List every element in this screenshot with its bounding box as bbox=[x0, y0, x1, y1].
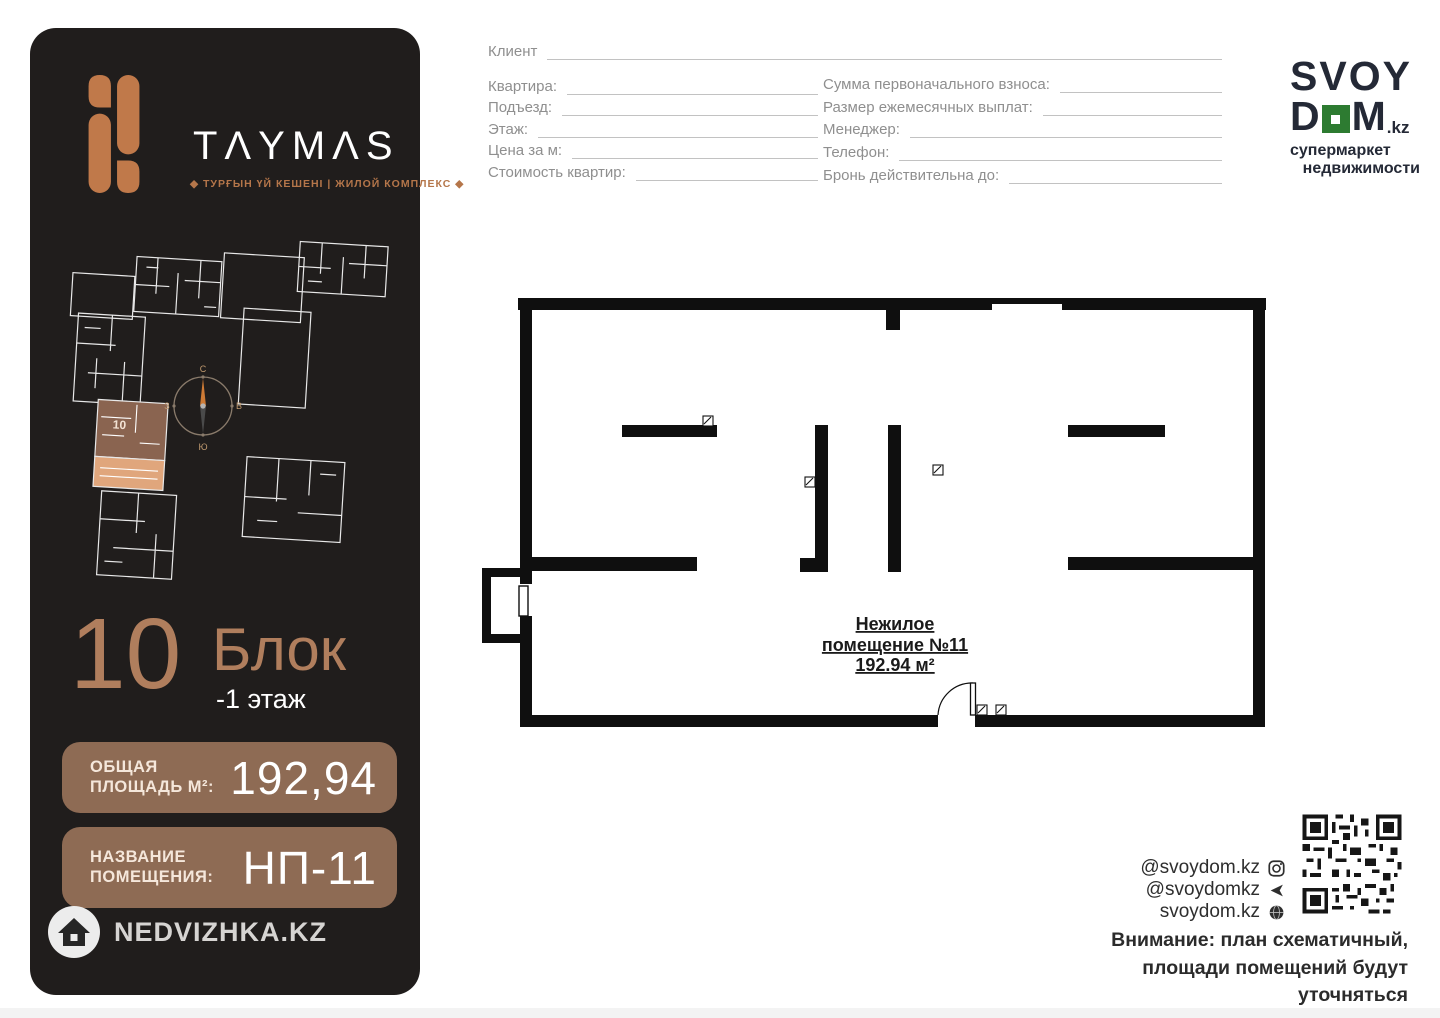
social-row: @svoydomkz bbox=[1080, 879, 1285, 901]
siteplan-building bbox=[73, 313, 145, 405]
form-label: Клиент bbox=[488, 43, 537, 60]
premises-label-line1: Нежилое bbox=[856, 614, 935, 634]
form-blank-line bbox=[910, 120, 1222, 138]
social-row: @svoydom.kz bbox=[1080, 857, 1285, 879]
form-blank-line bbox=[547, 42, 1222, 60]
house-icon bbox=[48, 906, 100, 958]
total-area-label: ОБЩАЯ ПЛОЩАДЬ М²: bbox=[90, 758, 214, 798]
siteplan-highlight-block bbox=[93, 399, 168, 490]
form-right-column: Сумма первоначального взноса: Размер еже… bbox=[823, 70, 1222, 184]
taymas-wordmark: TΛYMΛS bbox=[193, 124, 400, 169]
form-label: Подъезд: bbox=[488, 99, 552, 116]
form-blank-line bbox=[567, 77, 818, 95]
siteplan-building bbox=[242, 457, 345, 543]
form-row: Квартира: bbox=[488, 73, 818, 95]
svoydom-line2: D M .kz bbox=[1290, 98, 1420, 136]
premises-label-line3: 192.94 м² bbox=[855, 655, 934, 675]
floor-plan: Нежилое помещение №11 192.94 м² bbox=[470, 280, 1280, 740]
form-row: Размер ежемесячных выплат: bbox=[823, 93, 1222, 116]
siteplan-building bbox=[221, 253, 305, 323]
form-blank-line bbox=[562, 98, 818, 116]
siteplan-building bbox=[134, 257, 222, 317]
form-blank-line bbox=[1009, 166, 1222, 184]
form-label: Бронь действительна до: bbox=[823, 167, 999, 184]
form-label: Размер ежемесячных выплат: bbox=[823, 99, 1033, 116]
siteplan-building bbox=[97, 491, 177, 579]
telegram-icon bbox=[1268, 882, 1285, 899]
compass-north-label: С bbox=[200, 364, 207, 374]
left-panel: TΛYMΛS ◆ ТУРҒЫН ҮЙ КЕШЕНІ | ЖИЛОЙ КОМПЛЕ… bbox=[30, 28, 420, 995]
disclaimer: Внимание: план схематичный, площади поме… bbox=[1030, 927, 1408, 1018]
svoydom-green-square-icon bbox=[1322, 105, 1350, 133]
form-blank-line bbox=[1060, 75, 1222, 93]
svoydom-logo: SVOY D M .kz супермаркет недвижимости bbox=[1290, 58, 1420, 178]
social-handle-text: @svoydomkz bbox=[1146, 879, 1260, 901]
social-handle-text: svoydom.kz bbox=[1160, 901, 1260, 923]
form-row: Менеджер: bbox=[823, 116, 1222, 139]
premises-label: Нежилое помещение №11 192.94 м² bbox=[822, 614, 968, 675]
globe-icon bbox=[1268, 904, 1285, 921]
form-blank-line bbox=[572, 141, 818, 159]
block-word: Блок bbox=[212, 620, 346, 680]
form-label: Менеджер: bbox=[823, 121, 900, 138]
form-label: Сумма первоначального взноса: bbox=[823, 76, 1050, 93]
form-blank-line bbox=[899, 143, 1222, 161]
disclaimer-line: Внимание: план схематичный, bbox=[1030, 927, 1408, 955]
siteplan-building bbox=[70, 273, 135, 320]
total-area-badge: ОБЩАЯ ПЛОЩАДЬ М²: 192,94 bbox=[62, 742, 397, 813]
form-row: Бронь действительна до: bbox=[823, 161, 1222, 184]
form-label: Стоимость квартир: bbox=[488, 164, 626, 181]
siteplan-highlight-label: 10 bbox=[112, 417, 127, 432]
form-left-column: Квартира: Подъезд: Этаж: Цена за м: Стои… bbox=[488, 73, 818, 181]
premises-label-line2: помещение №11 bbox=[822, 635, 968, 655]
total-area-value: 192,94 bbox=[230, 751, 377, 805]
form-row: Сумма первоначального взноса: bbox=[823, 70, 1222, 93]
svoydom-subtitle1: супермаркет bbox=[1290, 142, 1420, 160]
siteplan-minimap: 10 С В Ю З bbox=[52, 228, 402, 593]
compass-west-label: З bbox=[164, 401, 169, 411]
social-handle-text: @svoydom.kz bbox=[1140, 857, 1260, 879]
social-row: svoydom.kz bbox=[1080, 901, 1285, 923]
taymas-tagline: ◆ ТУРҒЫН ҮЙ КЕШЕНІ | ЖИЛОЙ КОМПЛЕКС ◆ bbox=[190, 178, 464, 190]
entrance-door bbox=[938, 683, 976, 715]
compass-south-label: Ю bbox=[198, 442, 207, 452]
svoydom-subtitle2: недвижимости bbox=[1290, 160, 1420, 178]
form-blank-line bbox=[636, 163, 818, 181]
compass-icon: С В Ю З bbox=[164, 364, 242, 452]
svoydom-line1: SVOY bbox=[1290, 58, 1420, 96]
disclaimer-line: площади помещений будут уточняться bbox=[1030, 955, 1408, 1010]
form-label: Этаж: bbox=[488, 121, 528, 138]
form-label: Квартира: bbox=[488, 78, 557, 95]
svoydom-tld: .kz bbox=[1387, 120, 1410, 136]
taymas-logo-icon bbox=[88, 75, 140, 193]
window-opening bbox=[992, 304, 1062, 311]
floor-label: -1 этаж bbox=[216, 684, 306, 715]
form-blank-line bbox=[1043, 98, 1222, 116]
form-row: Телефон: bbox=[823, 138, 1222, 161]
premises-name-value: НП-11 bbox=[243, 841, 377, 895]
form-row: Цена за м: bbox=[488, 138, 818, 160]
form-label: Телефон: bbox=[823, 144, 889, 161]
page-bottom-edge bbox=[0, 1008, 1440, 1018]
qr-code bbox=[1299, 811, 1405, 917]
form-row: Подъезд: bbox=[488, 95, 818, 117]
door-leaf bbox=[519, 586, 528, 616]
form-row-client: Клиент bbox=[488, 42, 1222, 60]
premises-name-label: НАЗВАНИЕ ПОМЕЩЕНИЯ: bbox=[90, 848, 213, 888]
form-row: Этаж: bbox=[488, 116, 818, 138]
siteplan-building bbox=[297, 241, 388, 296]
nedvizhka-watermark: NEDVIZHKA.KZ bbox=[48, 906, 327, 958]
form-row: Стоимость квартир: bbox=[488, 159, 818, 181]
compass-east-label: В bbox=[236, 401, 242, 411]
premises-name-badge: НАЗВАНИЕ ПОМЕЩЕНИЯ: НП-11 bbox=[62, 827, 397, 908]
social-handles: @svoydom.kz @svoydomkz svoydom.kz bbox=[1080, 857, 1285, 923]
instagram-icon bbox=[1268, 860, 1285, 877]
block-number: 10 bbox=[70, 604, 181, 704]
form-blank-line bbox=[538, 120, 818, 138]
form-label: Цена за м: bbox=[488, 142, 562, 159]
flyer-page: TΛYMΛS ◆ ТУРҒЫН ҮЙ КЕШЕНІ | ЖИЛОЙ КОМПЛЕ… bbox=[0, 0, 1440, 1018]
nedvizhka-text: NEDVIZHKA.KZ bbox=[114, 917, 327, 948]
